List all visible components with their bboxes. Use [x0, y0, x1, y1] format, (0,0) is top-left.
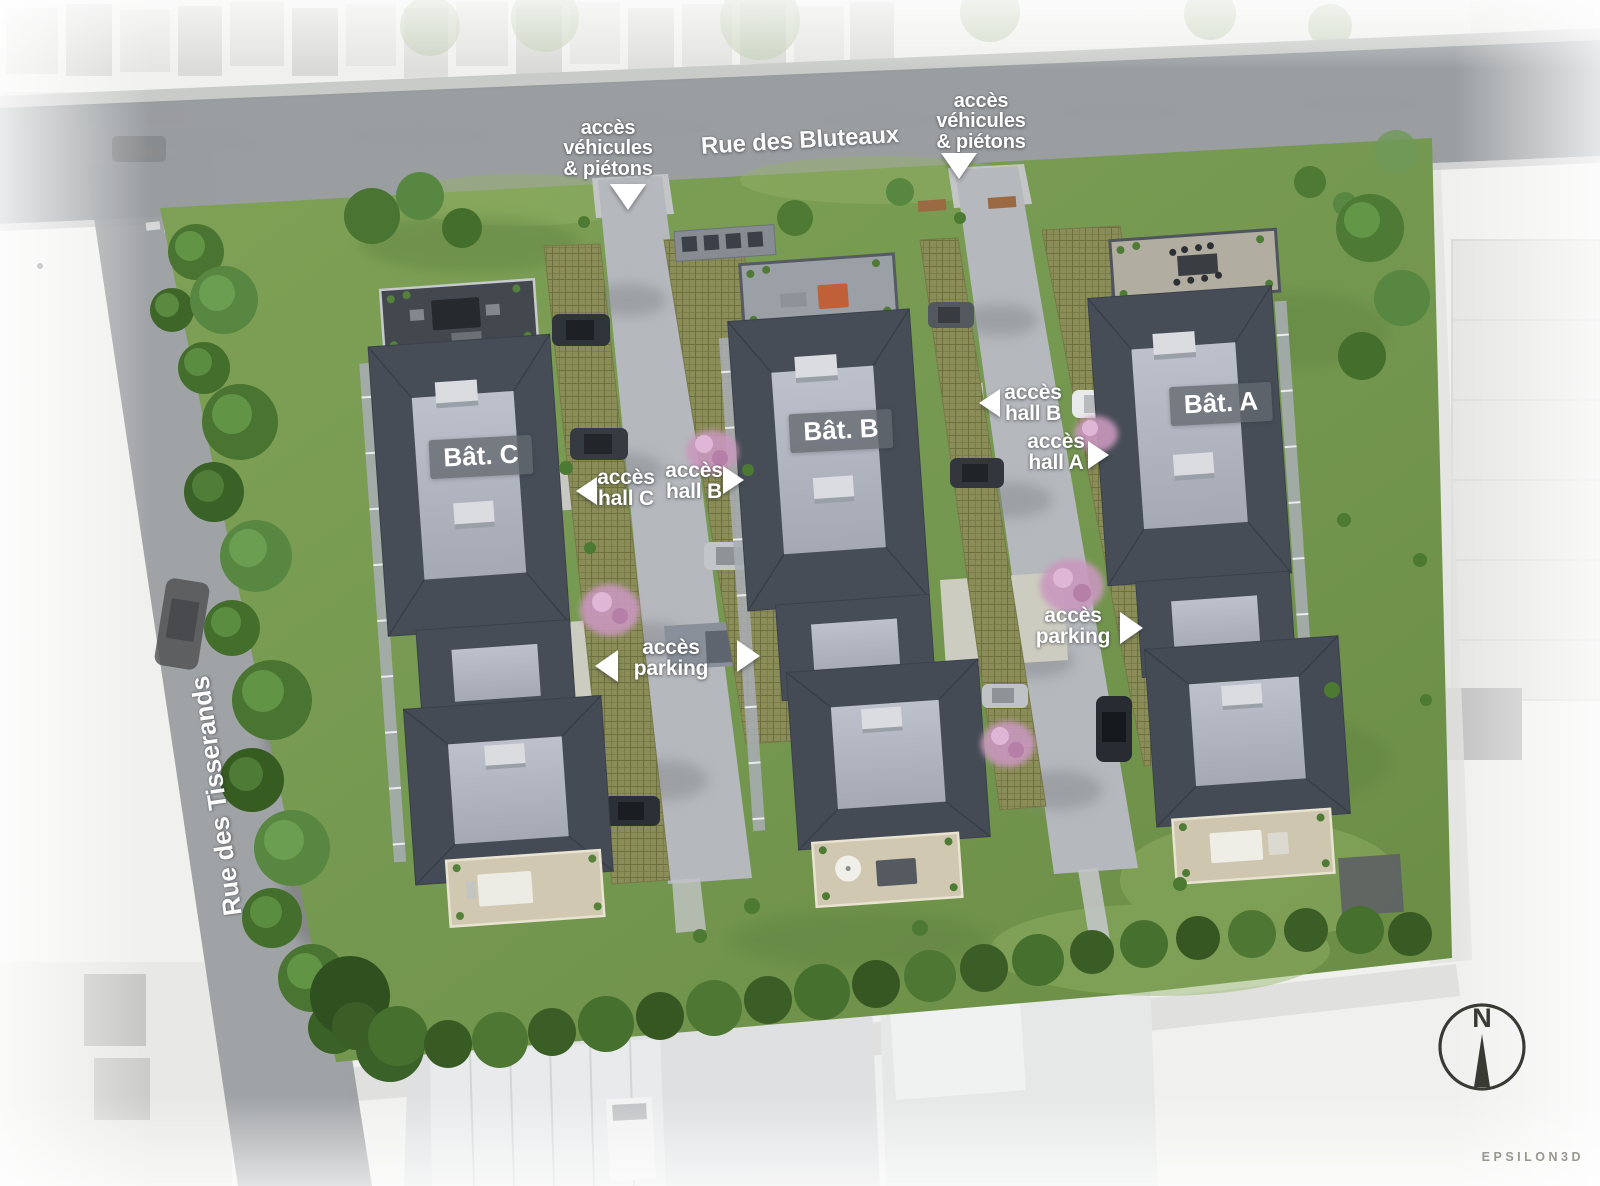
site-plan-rendering — [0, 0, 1600, 1186]
building-label-c: Bât. C — [428, 435, 533, 479]
compass-north-label: N — [1472, 1003, 1492, 1034]
label-access-hall-c: accès hall C — [597, 467, 654, 510]
studio-credit: EPSILON3D — [1482, 1150, 1584, 1164]
label-access-parking-left: accès parking — [634, 637, 708, 680]
bin-shelter — [674, 225, 776, 262]
label-access-hall-b-center: accès hall B — [665, 460, 722, 503]
arrow-down-icon — [610, 184, 646, 210]
compass-needle-icon — [1474, 1034, 1490, 1087]
arrow-left-icon — [595, 650, 618, 682]
arrow-down-icon — [941, 153, 977, 179]
building-label-a: Bât. A — [1169, 382, 1273, 426]
site-plan: Rue des Bluteaux Rue des Tisserands accè… — [0, 0, 1600, 1186]
label-access-vehicles-left: accès véhicules & piétons — [563, 118, 652, 179]
arrow-right-icon — [1088, 441, 1109, 469]
arrow-left-icon — [979, 389, 1000, 417]
label-access-hall-b-right: accès hall B — [1004, 382, 1061, 425]
arrow-left-icon — [576, 477, 597, 505]
label-access-hall-a: accès hall A — [1027, 431, 1084, 474]
arrow-right-icon — [1120, 612, 1143, 644]
arrow-right-icon — [723, 466, 744, 494]
arrow-right-icon — [737, 640, 760, 672]
label-access-vehicles-right: accès véhicules & piétons — [936, 91, 1025, 152]
label-access-parking-right: accès parking — [1036, 605, 1110, 648]
compass: N — [1437, 1001, 1527, 1093]
building-label-b: Bât. B — [788, 409, 893, 453]
